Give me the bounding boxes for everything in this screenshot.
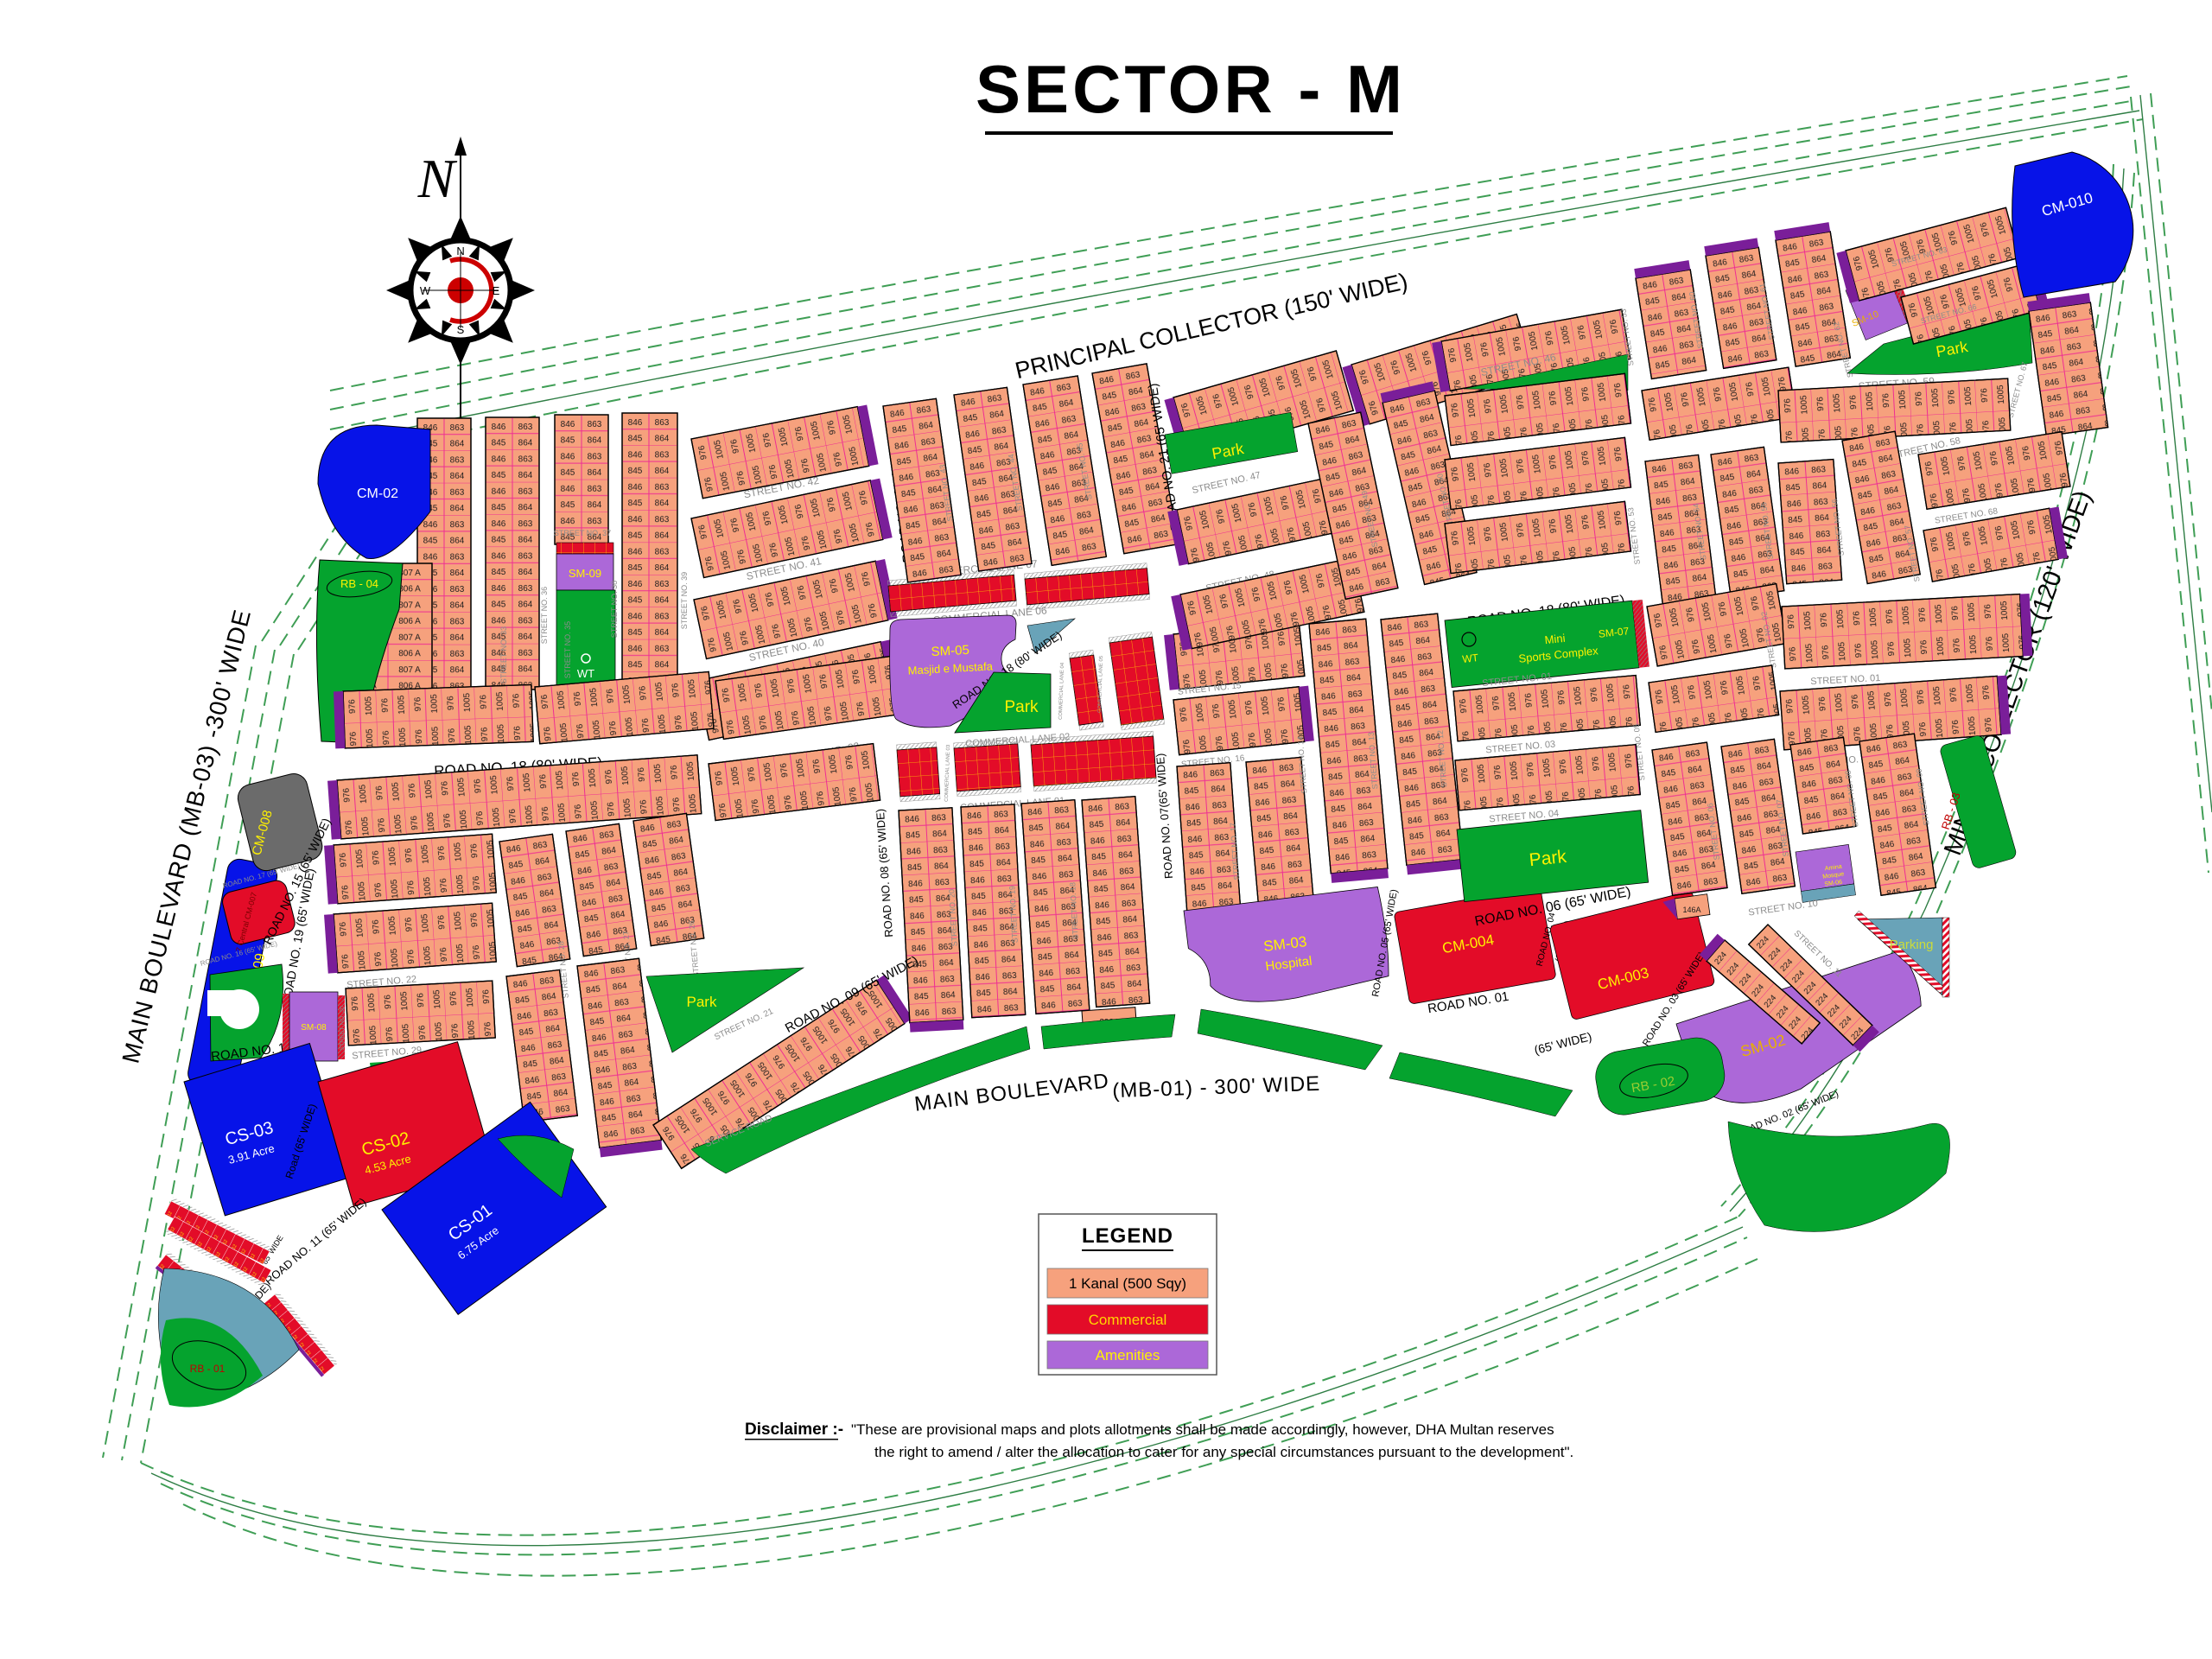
svg-text:STREET NO. 37: STREET NO. 37 [554, 529, 611, 537]
svg-text:S: S [457, 323, 465, 336]
svg-text:LEGEND: LEGEND [1082, 1224, 1173, 1248]
svg-text:STREET NO. 39: STREET NO. 39 [680, 572, 689, 629]
svg-text:SM-08: SM-08 [301, 1023, 327, 1033]
svg-text:STREET NO. 38: STREET NO. 38 [610, 581, 619, 638]
svg-text:W: W [420, 284, 431, 297]
svg-text:STREET NO. 33: STREET NO. 33 [499, 626, 508, 683]
svg-text:1 Kanal (500 Sqy): 1 Kanal (500 Sqy) [1069, 1275, 1186, 1292]
svg-text:Amenities: Amenities [1096, 1347, 1160, 1363]
svg-text:Disclaimer :-: Disclaimer :- [745, 1421, 843, 1439]
svg-text:STREET NO. 35: STREET NO. 35 [563, 621, 572, 678]
svg-text:STREET NO. 36: STREET NO. 36 [540, 587, 549, 644]
svg-text:Park: Park [1004, 698, 1039, 716]
svg-text:N: N [456, 245, 464, 257]
svg-text:N: N [417, 148, 458, 209]
svg-text:SECTOR - M: SECTOR - M [976, 51, 1406, 127]
svg-text:Mini: Mini [1544, 632, 1566, 646]
svg-text:Park: Park [687, 994, 717, 1010]
svg-text:the right to amend / alter the: the right to amend / alter the allocatio… [874, 1444, 1573, 1460]
svg-text:RB - 01: RB - 01 [190, 1363, 226, 1375]
svg-text:Park: Park [1529, 847, 1568, 870]
svg-text:CM-02: CM-02 [357, 486, 398, 501]
svg-text:STREET NO. 30: STREET NO. 30 [340, 1006, 346, 1051]
svg-text:"These are provisional maps an: "These are provisional maps and plots al… [851, 1421, 1554, 1438]
svg-text:WT: WT [1462, 652, 1480, 665]
svg-text:Commercial: Commercial [1089, 1312, 1167, 1328]
svg-text:RB - 04: RB - 04 [340, 577, 378, 590]
svg-text:SM-05: SM-05 [931, 643, 969, 659]
svg-text:Parking: Parking [1890, 938, 1934, 952]
svg-text:E: E [493, 284, 500, 297]
svg-text:SM-09: SM-09 [569, 567, 601, 580]
svg-text:WT: WT [577, 667, 594, 680]
svg-text:146A: 146A [1682, 906, 1700, 914]
